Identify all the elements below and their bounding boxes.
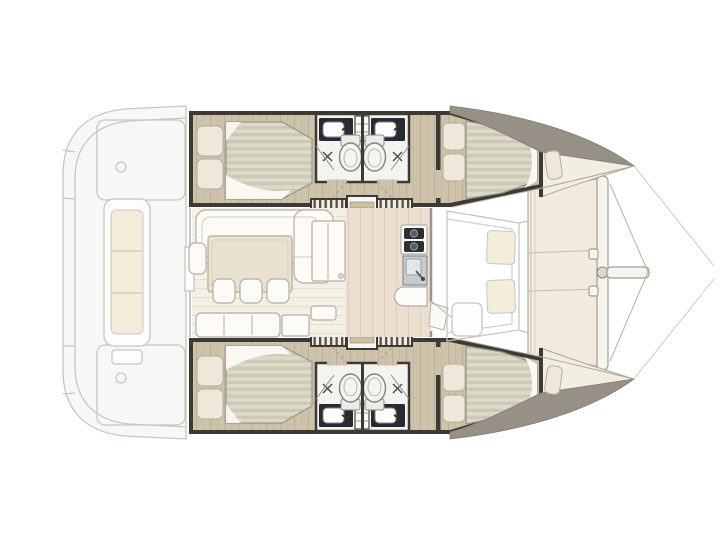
catamaran-floorplan xyxy=(0,0,720,539)
pillow xyxy=(197,159,223,189)
floorplan-canvas xyxy=(0,0,720,539)
fwd-bench-cushion xyxy=(486,280,515,314)
burner-icon xyxy=(410,243,417,250)
sink xyxy=(323,122,344,137)
ladder-rung xyxy=(350,202,374,208)
dinette-chair xyxy=(267,279,289,303)
dinette-chair xyxy=(213,279,235,303)
sink-basin xyxy=(406,259,421,275)
bowsprit xyxy=(607,267,649,278)
cabinet-knob xyxy=(339,274,344,279)
foredeck-platform xyxy=(528,178,603,367)
pillow xyxy=(443,154,465,181)
dinette-chair xyxy=(240,279,262,303)
cockpit-bench-cushion xyxy=(111,210,143,334)
aft-cabin xyxy=(197,122,312,199)
cockpit-side-table xyxy=(112,350,142,364)
faucet-icon xyxy=(398,124,401,127)
pillow xyxy=(197,126,223,156)
faucet-icon xyxy=(421,277,425,281)
bench-seat xyxy=(196,313,280,337)
cabin-door-opening xyxy=(435,170,442,198)
beam-cleat xyxy=(589,249,598,259)
saloon-step xyxy=(311,306,336,320)
fwd-bench-cushion xyxy=(486,231,515,265)
bowsprit-fitting xyxy=(597,267,608,278)
aft-cockpit-ghost xyxy=(63,106,186,439)
faucet-icon xyxy=(346,124,349,127)
burner-icon xyxy=(410,230,417,237)
dinette-chair xyxy=(189,243,206,274)
beam-cleat xyxy=(589,286,598,296)
bathroom-door-opening xyxy=(327,180,347,184)
fwd-cockpit-module xyxy=(452,303,482,336)
bathroom-divider-wall xyxy=(361,114,364,182)
bench-side-cabinet xyxy=(282,315,309,336)
pillow xyxy=(443,123,465,150)
bathroom-door-opening xyxy=(377,180,397,184)
saloon xyxy=(185,208,451,337)
galley-worktop xyxy=(395,287,427,306)
forepeak-pillow xyxy=(544,150,563,180)
